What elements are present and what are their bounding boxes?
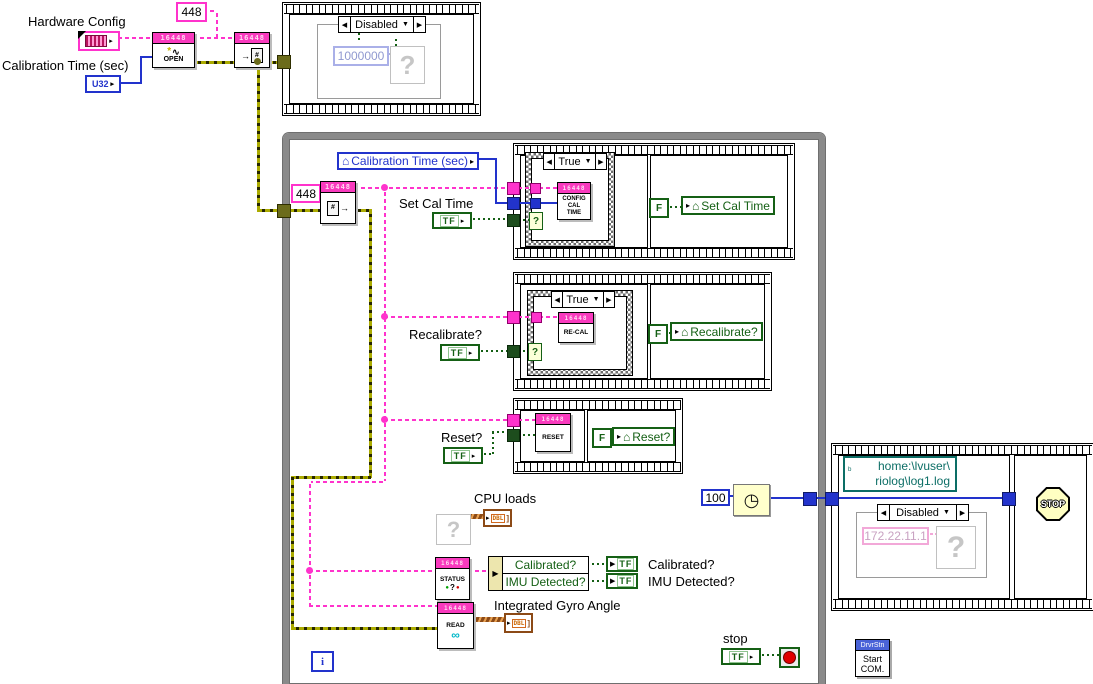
prev-case-arrow-icon[interactable]: ◀ — [339, 17, 351, 32]
wire-segment — [193, 61, 234, 64]
input-arrow-icon: ▶ — [610, 560, 615, 568]
stop-boolean-control[interactable]: TF▸ — [721, 648, 761, 665]
tunnel — [803, 492, 817, 506]
film-perforation — [515, 274, 770, 284]
path-type-icon: ᵇ — [848, 463, 851, 478]
driver-station-start-com-node[interactable]: DrvrStn Start COM. — [855, 639, 890, 677]
wire-segment — [469, 514, 484, 519]
wire-segment — [291, 476, 294, 629]
integrated-gyro-array-indicator[interactable]: ▸ DBL ] — [504, 613, 533, 633]
stop-label: stop — [723, 631, 748, 646]
output-arrow-icon: ▸ — [461, 217, 465, 225]
wire-segment — [471, 617, 504, 622]
tunnel — [507, 311, 520, 324]
integrated-gyro-angle-label: Integrated Gyro Angle — [494, 598, 620, 613]
output-arrow-icon: ▸ — [750, 653, 754, 661]
disable-structure-selector[interactable]: ◀ Disabled▼ ▶ — [877, 504, 969, 521]
cluster-strip: ▶ — [489, 557, 503, 590]
calibrated-boolean-indicator[interactable]: ▶TF — [606, 556, 638, 572]
loop-condition-terminal[interactable] — [779, 647, 800, 668]
node-header: 16448 — [438, 603, 473, 614]
sequence-frame — [1014, 455, 1087, 599]
prev-case-arrow-icon[interactable]: ◀ — [878, 505, 890, 520]
case-selector-true[interactable]: ◀ True▼ ▶ — [551, 291, 615, 308]
tunnel — [507, 214, 520, 227]
next-case-arrow-icon[interactable]: ▶ — [595, 154, 606, 169]
output-arrow-icon: ▸ — [470, 157, 474, 166]
house-icon: ⌂ — [692, 199, 699, 213]
next-case-arrow-icon[interactable]: ▶ — [956, 505, 968, 520]
wire-segment — [384, 419, 507, 421]
wire-segment — [140, 56, 152, 58]
wire-junction — [306, 567, 313, 574]
film-perforation — [833, 445, 1092, 455]
case-selector-terminal: ? — [528, 343, 542, 361]
terminal-corner-icon — [78, 31, 86, 39]
disable-structure-selector[interactable]: ◀ Disabled▼ ▶ — [338, 16, 426, 33]
reset-local-write[interactable]: ▸ ⌂ Reset? — [612, 427, 675, 446]
wire-segment — [358, 33, 360, 40]
wire-segment — [495, 202, 507, 204]
array-bracket-icon: ] — [527, 619, 530, 628]
reset-node[interactable]: 16448 RESET — [535, 413, 571, 452]
spark-icon: * — [167, 48, 171, 56]
set-cal-time-label: Set Cal Time — [399, 196, 473, 211]
node-header: 16448 — [558, 183, 590, 194]
imu-detected-label: IMU Detected? — [648, 574, 735, 589]
house-icon: ⌂ — [681, 325, 688, 339]
film-perforation — [515, 379, 770, 389]
wire-segment — [354, 187, 507, 189]
wire-junction — [381, 313, 388, 320]
tunnel — [507, 182, 520, 195]
missing-vi-placeholder[interactable]: ? — [390, 46, 425, 84]
output-arrow-icon: ▸ — [111, 80, 115, 88]
hardware-config-label: Hardware Config — [28, 14, 126, 29]
recalibrate-local-write[interactable]: ▸ ⌂ Recalibrate? — [670, 322, 763, 341]
wire-segment — [518, 419, 535, 421]
wire-segment — [495, 158, 497, 204]
wire-segment — [395, 38, 397, 46]
imu-open-node[interactable]: 16448 *∿ OPEN — [152, 32, 195, 68]
unbundle-arrow-icon: ▶ — [492, 569, 498, 578]
node-header: 16448 — [436, 558, 469, 569]
wire-segment — [476, 350, 507, 352]
wire-segment — [477, 158, 497, 160]
wire-junction — [381, 184, 388, 191]
wire-segment — [384, 316, 507, 318]
wire-segment — [384, 187, 386, 483]
wire-junction — [381, 416, 388, 423]
wait-ms-node[interactable]: ◷ — [733, 484, 770, 516]
constant-448-top[interactable]: 448 — [176, 2, 207, 22]
wire-segment — [257, 61, 260, 211]
array-bracket-icon: ] — [506, 514, 509, 523]
calibration-time-label: Calibration Time (sec) — [2, 58, 128, 73]
case-selector-terminal: ? — [529, 212, 543, 230]
output-arrow-icon: ▸ — [469, 349, 473, 357]
unbundle-field-imu-detected[interactable]: IMU Detected? — [503, 573, 588, 590]
tunnel — [507, 197, 520, 210]
film-perforation — [833, 599, 1092, 609]
input-arrow-icon: ▸ — [486, 514, 490, 522]
imu-detected-boolean-indicator[interactable]: ▶TF — [606, 573, 638, 589]
cluster-pattern-icon — [85, 35, 107, 47]
node-label: OPEN — [164, 56, 184, 64]
constant-100[interactable]: 100 — [701, 489, 730, 506]
reset-label: Reset? — [441, 430, 482, 445]
tunnel — [530, 198, 541, 209]
next-case-arrow-icon[interactable]: ▶ — [413, 17, 425, 32]
hardware-config-terminal[interactable]: ▸ — [78, 31, 120, 51]
set-cal-time-boolean-control[interactable]: TF▸ — [432, 212, 472, 229]
dbl-type-icon: DBL — [491, 514, 506, 523]
wire-segment — [257, 209, 278, 212]
read-node[interactable]: 16448 READ ∞ — [437, 602, 474, 649]
recalibrate-boolean-control[interactable]: TF▸ — [440, 344, 480, 361]
wire-segment — [838, 497, 1004, 499]
document-icon: # — [327, 201, 339, 216]
next-case-arrow-icon[interactable]: ▶ — [603, 292, 614, 307]
disabled-ip-constant[interactable]: 172.22.11.1 — [862, 527, 929, 545]
film-perforation — [515, 248, 793, 258]
set-cal-time-local-write[interactable]: ▸ ⌂ Set Cal Time — [681, 196, 775, 215]
tunnel — [507, 429, 520, 442]
film-perforation — [284, 4, 479, 14]
tunnel — [1002, 492, 1016, 506]
arrow-out-of-doc-icon: → — [340, 204, 349, 212]
wire-segment — [468, 570, 488, 572]
false-constant[interactable]: F — [648, 324, 668, 344]
node-header: 16448 — [321, 182, 355, 193]
wire-segment — [309, 570, 435, 572]
false-constant[interactable]: F — [649, 198, 669, 218]
wire-segment — [768, 497, 803, 499]
stop-circle-icon — [783, 651, 796, 664]
input-arrow-icon: ▸ — [507, 619, 511, 627]
wire-segment — [518, 434, 535, 436]
wire-segment — [492, 431, 494, 454]
tunnel — [825, 492, 839, 506]
green-status-dot-icon: ● — [445, 584, 449, 592]
wire-segment — [118, 37, 152, 39]
node-header: 16448 — [153, 33, 194, 44]
signal-icon: ∿ — [172, 48, 180, 56]
prev-case-arrow-icon[interactable]: ◀ — [544, 154, 555, 169]
arrow-into-doc-icon: → — [241, 52, 250, 60]
node-header: 16448 — [235, 33, 269, 44]
output-arrow-icon: ▸ — [472, 452, 476, 460]
house-icon: ⌂ — [342, 154, 349, 168]
loop-iteration-terminal[interactable]: i — [311, 651, 334, 672]
wire-segment — [291, 476, 371, 479]
tunnel — [507, 345, 520, 358]
wire-segment — [369, 209, 372, 478]
cpu-loads-label: CPU loads — [474, 491, 536, 506]
constant-448-loop[interactable]: 448 — [291, 184, 321, 203]
missing-vi-placeholder[interactable]: ? — [936, 526, 976, 569]
film-perforation — [284, 104, 479, 114]
dropdown-icon: ▼ — [943, 509, 950, 516]
calibrated-label: Calibrated? — [648, 557, 715, 572]
wire-segment — [587, 580, 606, 582]
clock-icon: ◷ — [744, 490, 760, 511]
unbundle-field-calibrated[interactable]: Calibrated? — [503, 557, 588, 573]
missing-vi-placeholder[interactable]: ? — [436, 514, 471, 545]
glasses-icon: ∞ — [451, 630, 460, 640]
status-node[interactable]: 16448 STATUS ●?● — [435, 557, 470, 600]
log-path-constant[interactable]: ᵇ home:\lvuser\ riolog\log1.log — [843, 456, 957, 492]
case-selector-true[interactable]: ◀ True▼ ▶ — [543, 153, 607, 170]
write-settings-node[interactable]: 16448 →# — [234, 32, 270, 68]
house-icon: ⌂ — [623, 430, 630, 444]
wire-segment — [216, 10, 218, 38]
output-arrow-icon: ▸ — [109, 37, 113, 45]
wire-segment — [587, 563, 606, 565]
red-status-dot-icon: ● — [456, 584, 460, 592]
tunnel — [530, 183, 541, 194]
input-arrow-icon: ▶ — [610, 577, 615, 585]
dbl-type-icon: DBL — [512, 619, 527, 628]
cpu-loads-array-indicator[interactable]: ▸ DBL ] — [483, 509, 512, 527]
tunnel — [507, 414, 520, 427]
prev-case-arrow-icon[interactable]: ◀ — [552, 292, 563, 307]
false-constant[interactable]: F — [592, 428, 612, 448]
node-header: 16448 — [536, 414, 570, 425]
dropdown-icon: ▼ — [593, 296, 600, 303]
u32-control-terminal[interactable]: U32 ▸ — [85, 75, 121, 93]
tunnel — [277, 55, 291, 69]
disabled-constant-1000000[interactable]: 1000000 — [333, 46, 389, 66]
input-arrow-icon: ▸ — [686, 201, 690, 210]
reset-boolean-control[interactable]: TF▸ — [443, 447, 483, 464]
dropdown-icon: ▼ — [402, 21, 409, 28]
stop-sign-node[interactable]: STOP — [1036, 487, 1070, 521]
wire-segment — [140, 56, 142, 84]
unbundle-by-name-node[interactable]: ▶ Calibrated? IMU Detected? — [488, 556, 589, 591]
tunnel — [277, 204, 291, 218]
film-perforation — [515, 462, 681, 472]
wire-segment — [291, 627, 437, 630]
input-arrow-icon: ▸ — [617, 432, 621, 441]
wire-segment — [193, 37, 234, 39]
dropdown-icon: ▼ — [585, 158, 592, 165]
wire-segment — [309, 481, 311, 607]
input-arrow-icon: ▸ — [675, 327, 679, 336]
wire-segment — [309, 481, 386, 483]
calibration-time-local-variable[interactable]: ⌂ Calibration Time (sec) ▸ — [337, 152, 479, 170]
config-cal-time-node[interactable]: 16448 CONFIG CAL TIME — [557, 182, 591, 220]
node-header: 16448 — [559, 313, 593, 324]
film-perforation — [515, 400, 681, 410]
wire-segment — [492, 431, 507, 433]
block-diagram-canvas: Hardware Config ▸ Calibration Time (sec)… — [0, 0, 1093, 684]
wire-segment — [309, 605, 437, 607]
tunnel — [531, 312, 542, 323]
wire-segment — [468, 218, 507, 220]
recalibrate-label: Recalibrate? — [409, 327, 482, 342]
read-settings-node[interactable]: 16448 #→ — [320, 181, 356, 224]
recal-node[interactable]: 16448 RE-CAL — [558, 312, 594, 343]
wire-junction — [254, 58, 261, 65]
